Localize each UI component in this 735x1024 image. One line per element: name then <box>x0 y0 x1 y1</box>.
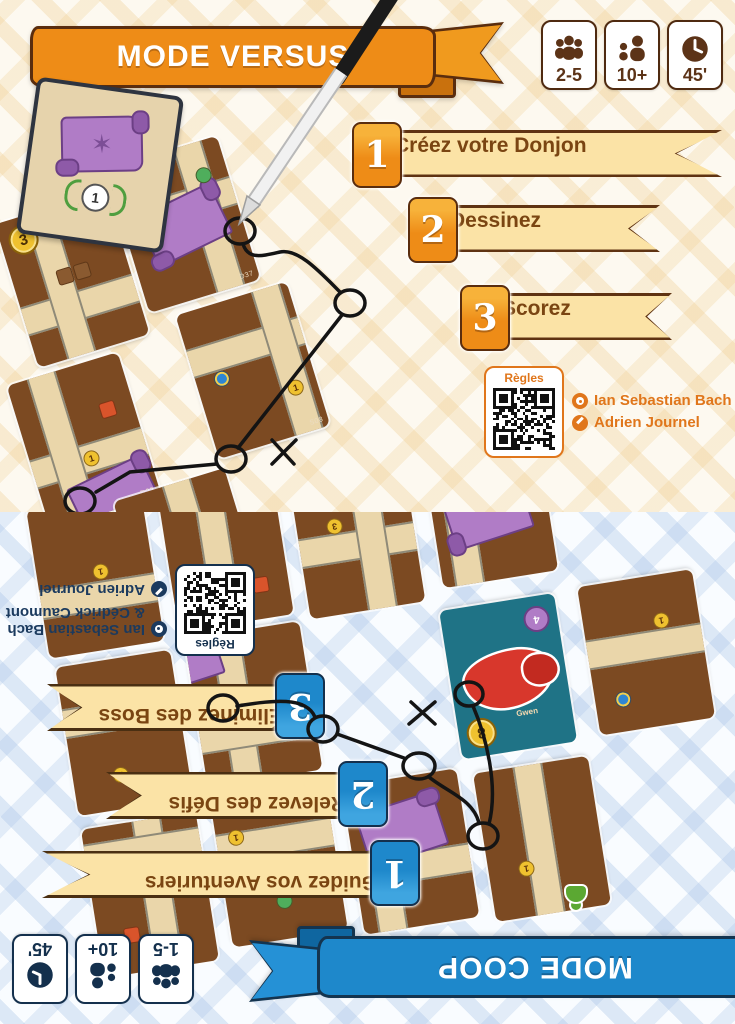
illustrator-icon <box>151 582 167 598</box>
dungeon-card: 3 B02 <box>287 512 425 619</box>
player-count: 2-5 <box>556 66 582 84</box>
page-title: MODE COOP <box>317 936 735 998</box>
step-number: 2 <box>408 197 458 263</box>
designer-names: Ian Sebastian Bach & Cédrick Caumont <box>6 604 145 639</box>
versus-credits: Ian Sebastian Bach Adrien Journel <box>572 392 732 432</box>
victory-point-value: 1 <box>80 182 112 214</box>
step-number: 2 <box>338 761 388 827</box>
adventurer-meeple <box>565 884 587 910</box>
score-card: ✶ 1 <box>16 76 185 253</box>
time-value: 45' <box>28 940 52 958</box>
illustrator-name: Adrien Journel <box>39 581 145 598</box>
players-icon <box>149 959 183 991</box>
players-icon <box>552 33 586 65</box>
designer-icon <box>572 393 588 409</box>
illustrator-credit: Adrien Journel <box>572 414 732 431</box>
age-icon <box>615 33 649 65</box>
step-label: Guidez vos Aventuriers <box>38 859 378 906</box>
timer-icon <box>23 959 57 991</box>
dungeon-card: 1 S08 <box>175 282 330 459</box>
time-badge: 45' <box>12 934 68 1004</box>
qr-code <box>184 572 246 634</box>
designer-credit: Ian Sebastian Bach <box>572 392 732 409</box>
dungeon-card: 9 <box>420 512 558 588</box>
step-label: Scorez <box>502 285 682 332</box>
designer-name: Ian Sebastian Bach <box>7 621 145 638</box>
dungeon-card: 1 D22 <box>7 352 162 512</box>
designer-name-2: & Cédrick Caumont <box>6 604 145 621</box>
medallion-icon <box>614 690 632 708</box>
time-badge: 45' <box>667 20 723 90</box>
age-value: 10+ <box>617 66 648 84</box>
illustrator-credit: Adrien Journel <box>6 581 167 598</box>
age-value: 10+ <box>88 940 119 958</box>
step-label: Créez votre Donjon <box>394 122 724 169</box>
step-label: Éliminez des Boss <box>39 692 283 739</box>
coop-credits: Ian Sebastian Bach & Cédrick Caumont Adr… <box>6 581 167 638</box>
versus-section: 3 1 1 D37 1 D22 1 <box>0 0 735 512</box>
players-badge: 1-5 <box>138 934 194 1004</box>
rules-qr-box: Règles <box>175 564 255 656</box>
age-badge: 10+ <box>75 934 131 1004</box>
page-title: MODE VERSUS <box>30 26 436 88</box>
step-label: Dessinez <box>450 197 670 244</box>
illustrator-name: Adrien Journel <box>594 414 700 431</box>
step-number: 3 <box>275 673 325 739</box>
spell-scroll-icon: ✶ <box>60 115 143 172</box>
timer-icon <box>678 33 712 65</box>
qr-label: Règles <box>504 371 543 385</box>
coin-icon: 1 <box>92 562 110 580</box>
age-icon <box>86 959 120 991</box>
time-value: 45' <box>683 66 707 84</box>
designer-icon <box>151 621 167 637</box>
boss-card: 8 Gwen 4 <box>439 593 577 759</box>
player-count: 1-5 <box>153 940 179 958</box>
qr-label: Règles <box>195 637 234 651</box>
dungeon-card: 1 <box>473 756 611 922</box>
coin-icon: 8 <box>465 716 499 750</box>
rules-qr-box: Règles <box>484 366 564 458</box>
illustrator-icon <box>572 415 588 431</box>
coop-title-banner: MODE COOP <box>253 926 735 1004</box>
age-badge: 10+ <box>604 20 660 90</box>
versus-stat-badges: 2-5 10+ 45' <box>541 20 723 90</box>
step-number: 1 <box>352 122 402 188</box>
shell-badge: 4 <box>522 604 552 634</box>
trap-icon <box>98 399 118 419</box>
qr-code <box>493 388 555 450</box>
step-number: 1 <box>370 840 420 906</box>
coop-section: 1 B04 1 B06 1 <box>0 512 735 1024</box>
boss-name: Gwen <box>516 706 539 718</box>
designer-name: Ian Sebastian Bach <box>594 392 732 409</box>
coop-stat-badges: 1-5 10+ 45' <box>12 934 194 1004</box>
players-badge: 2-5 <box>541 20 597 90</box>
step-label: Relevez des Défis <box>98 780 346 827</box>
dragon-boss-icon <box>461 645 557 714</box>
barrel-icon <box>72 261 92 281</box>
scroll-icon <box>440 512 535 552</box>
step-number: 3 <box>460 285 510 351</box>
designer-credit: Ian Sebastian Bach & Cédrick Caumont <box>6 604 167 639</box>
victory-laurel: 1 <box>62 178 128 218</box>
dungeon-card: 1 <box>577 569 715 735</box>
rulebook-page: 3 1 1 D37 1 D22 1 <box>0 0 735 1024</box>
